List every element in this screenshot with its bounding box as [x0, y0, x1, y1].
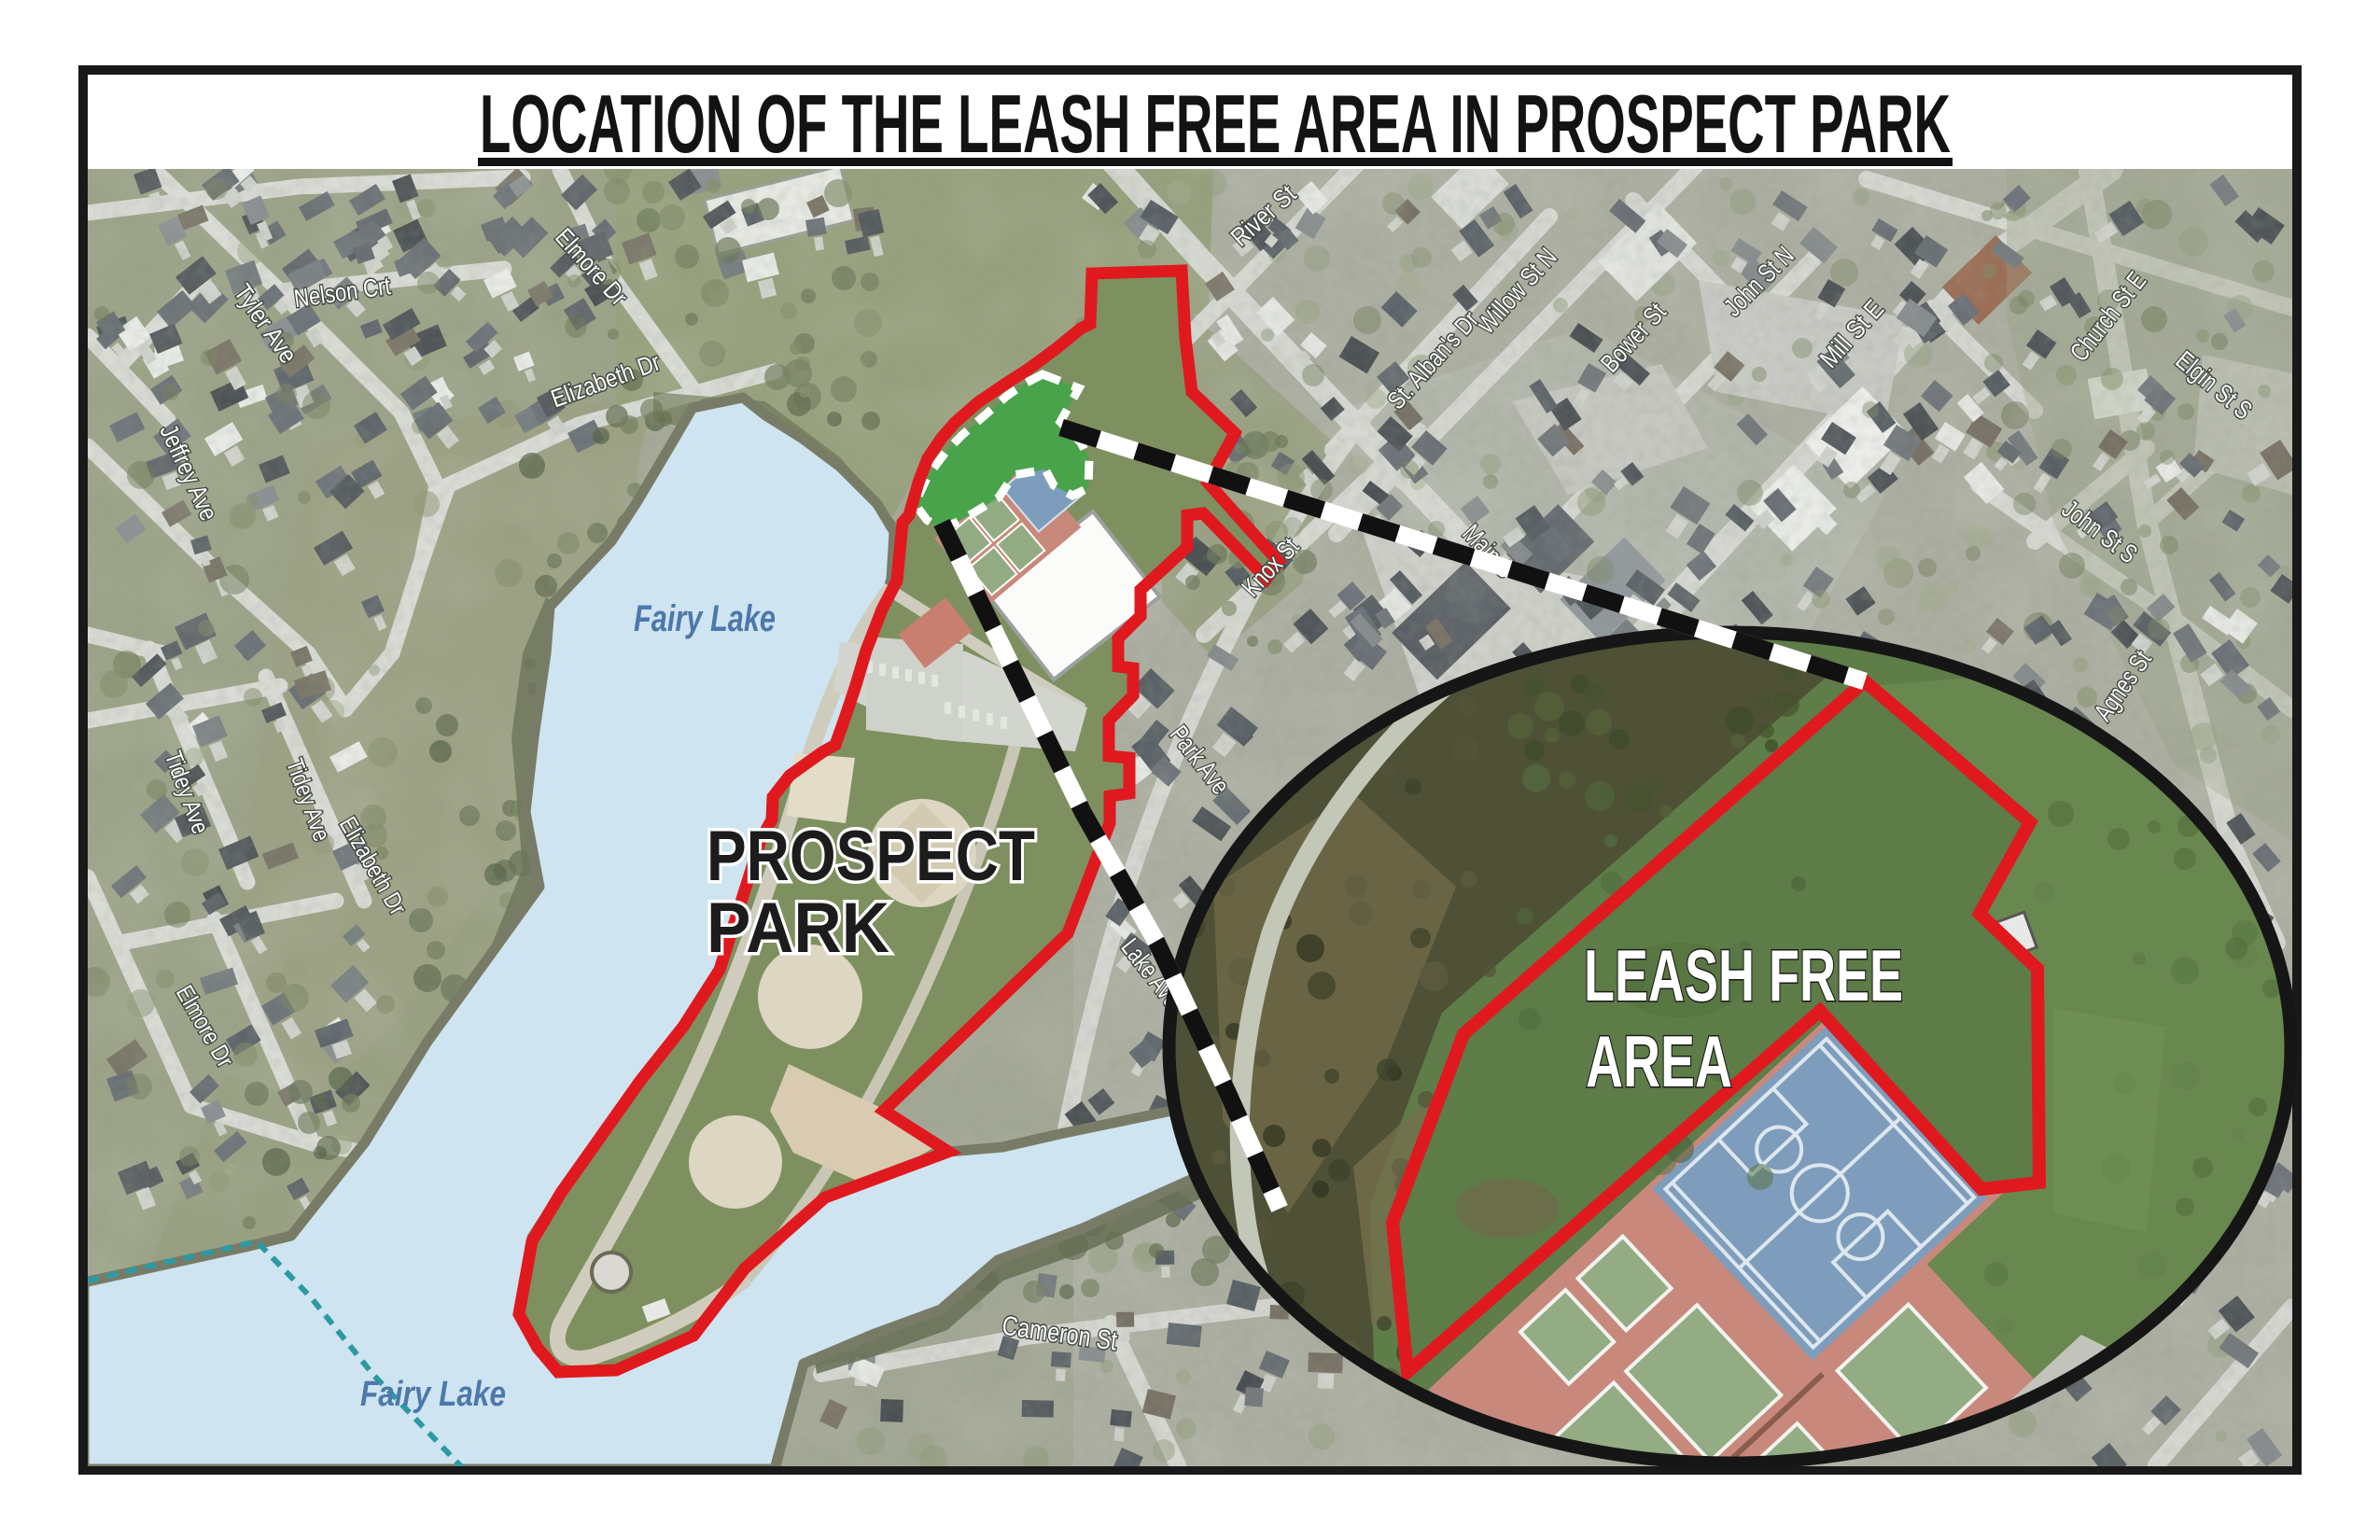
svg-text:Fairy Lake: Fairy Lake [634, 598, 776, 639]
svg-text:Fairy Lake: Fairy Lake [360, 1375, 506, 1414]
svg-text:PARK: PARK [707, 889, 889, 968]
svg-text:AREA: AREA [1586, 1020, 1732, 1102]
svg-text:LOCATION OF THE LEASH FREE ARE: LOCATION OF THE LEASH FREE AREA IN PROSP… [480, 77, 1951, 170]
svg-text:PROSPECT: PROSPECT [707, 817, 1035, 896]
svg-text:LEASH FREE: LEASH FREE [1584, 934, 1903, 1016]
